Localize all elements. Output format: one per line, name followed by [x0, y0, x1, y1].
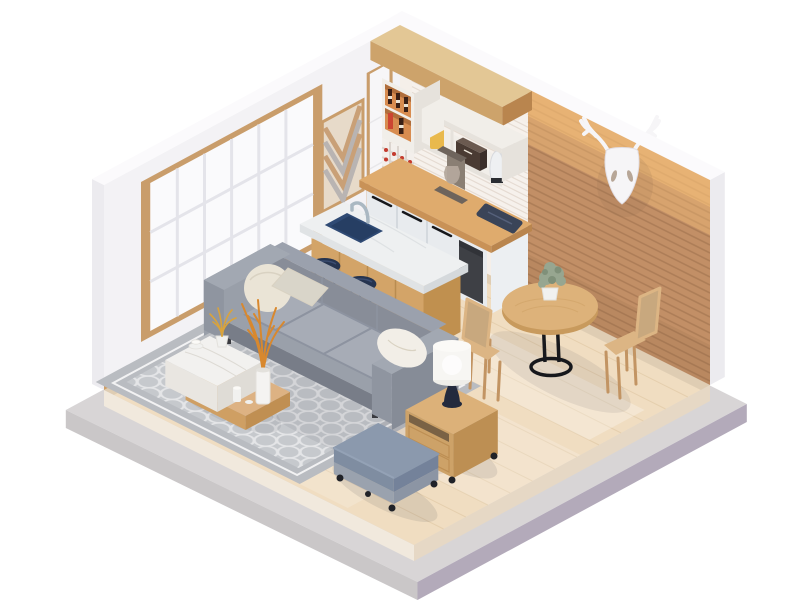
cup — [192, 340, 201, 344]
bottle-label — [399, 125, 404, 128]
bottle-label — [396, 100, 400, 103]
vase-mouth — [256, 368, 270, 373]
render-canvas — [0, 0, 800, 600]
bottle-label — [388, 96, 392, 99]
red-bottle — [388, 113, 393, 129]
right-wall-outer-cap — [710, 172, 725, 385]
jar-lid — [245, 400, 253, 404]
isometric-room-illustration — [0, 0, 800, 600]
grass-pot — [216, 336, 228, 347]
kettle-base — [491, 178, 503, 183]
box-side — [480, 150, 487, 172]
lamp-glow — [442, 355, 462, 375]
bottle-label — [404, 104, 408, 107]
vase-body — [256, 370, 270, 404]
lamp-shade-top — [433, 340, 471, 352]
jar — [233, 388, 241, 402]
left-wall-outer-cap — [92, 179, 104, 390]
arm-front — [372, 364, 392, 424]
chair-backrest — [636, 288, 660, 341]
jar-lid — [233, 386, 241, 390]
plant-pot — [542, 288, 558, 300]
